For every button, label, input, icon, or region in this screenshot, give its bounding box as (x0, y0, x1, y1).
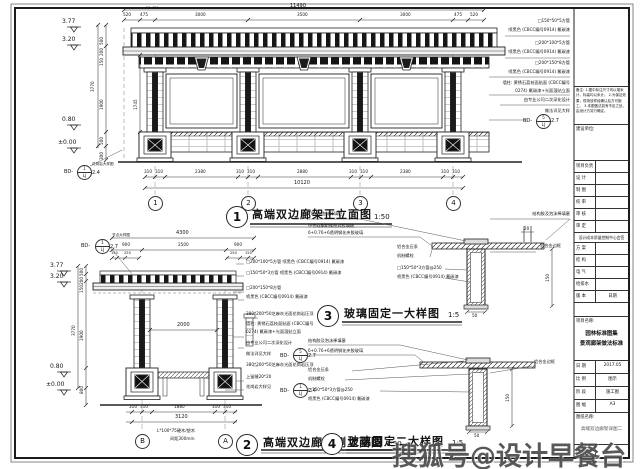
side-dim-small: 150 (245, 252, 252, 256)
annotation: 6+0.76+6透明钢化夹胶玻璃 (308, 231, 363, 235)
info-value: 图示 (596, 374, 629, 386)
drawing-name-label: 图纸名称: (574, 413, 629, 420)
cs-value (596, 279, 629, 290)
side-dim: 900 (234, 243, 242, 247)
info-value: 2017.05 (596, 361, 629, 373)
countersign-row: 方 案 (574, 243, 629, 255)
info-key: 日 期 (574, 361, 596, 373)
view-scale: 1:50 (374, 214, 390, 221)
annotation: □150*50*3方管@250 (308, 388, 353, 392)
annotation: 10mm泡沫棒填充 (308, 212, 342, 216)
info-row: 日 期2017.05 (574, 361, 629, 374)
ref-num: 5 (294, 349, 307, 356)
front-dim: 310 (452, 170, 460, 174)
sign-value (596, 221, 629, 232)
annotation: 花岗岩大样见 (246, 385, 271, 389)
level-label: ±0.00 (46, 382, 64, 388)
info-value: A3 (596, 400, 629, 412)
annotation: 上留缝20*20 (246, 375, 271, 379)
countersign-row: 给排水 (574, 279, 629, 291)
annotation: 墙柱: 黄锈石荔枝面贴面 (CBCC编号 (452, 81, 570, 85)
front-dim-total-top: 11490 (290, 4, 306, 9)
cs-value (596, 255, 629, 266)
annotation: 做法详见大样 (246, 352, 271, 356)
front-dim: 3000 (400, 13, 411, 17)
side-vdim: 3770 (72, 325, 76, 336)
ref-note: 花岗岩大样图 (92, 163, 114, 167)
side-vdim: 1900 (80, 330, 84, 341)
view-number-bubble: 4 (321, 433, 343, 455)
detail-dim: 150 (546, 274, 550, 282)
front-vdim: 300 (100, 152, 104, 160)
grid-bubble-B: B (135, 434, 150, 449)
side-vdim: 200 (80, 277, 84, 285)
view-number-bubble: 1 (226, 206, 248, 228)
project-name-line2: 景观廊架做法标准 (574, 339, 629, 347)
project-name-block: 项目名称: 园林标准图集 景观廊架做法标准 (574, 317, 629, 361)
front-dim: 475 (140, 13, 148, 17)
side-dim: 1880 (174, 405, 185, 409)
countersign-header: 设计成本质量控制中心会签 (574, 233, 629, 243)
sign-value (596, 161, 629, 172)
cs-label: 结 构 (574, 255, 596, 266)
front-vdim: 1745 (134, 99, 138, 110)
sign-row: 制 图 (574, 185, 629, 197)
level-label: ±0.00 (58, 140, 76, 146)
annotation: 喷黑色 (CBCC编号0914) 氟碳漆 (397, 275, 459, 279)
sign-row: 审 定 (574, 221, 629, 233)
ref-code: LJ (294, 391, 307, 397)
annotation: □200*150*8方管 (452, 61, 570, 65)
side-dim-small: 250 (124, 252, 131, 256)
annotation: □200*100*5方管 (452, 41, 570, 45)
ref-prefix: BD- (280, 354, 289, 359)
front-dim: 2380 (195, 170, 206, 174)
front-dim: 310 (247, 170, 255, 174)
side-dim: 310 (212, 405, 220, 409)
view-number-bubble: 2 (236, 434, 258, 456)
info-row: 图 幅A3 (574, 400, 629, 413)
sign-value (596, 185, 629, 196)
grid-bubble-A: A (218, 434, 233, 449)
ref-suffix: 2.4 (92, 171, 100, 176)
ref-bubble: 1LJ (95, 239, 110, 254)
ref-suffix: 2.7 (110, 245, 118, 250)
annotation: 380*200*50芝麻灰光面花岗岩压顶 (246, 312, 313, 316)
info-key: 阶 段 (574, 387, 596, 399)
level-label: 3.20 (50, 274, 63, 280)
detail-dim: 50 (472, 314, 477, 318)
side-dim-small: 150 (111, 252, 118, 256)
sign-label: 校 审 (574, 197, 596, 208)
ref-num: 1 (96, 240, 109, 247)
sign-label: 审 定 (574, 221, 596, 232)
front-vdim: 500 (100, 137, 104, 145)
ref-bubble: 1LJ (293, 383, 308, 398)
level-label: 3.77 (62, 19, 75, 25)
side-vdim: 800 (80, 386, 84, 394)
drawing-name: 高端双边廊架详图二 (574, 426, 629, 432)
detail-dim: 20 (524, 227, 529, 231)
annotation: 喷黑色 (CBCC编号0914) 氟碳漆 (308, 397, 370, 401)
sign-label: 设 计 (574, 173, 596, 184)
annotation: 铝合金边框 (540, 244, 561, 248)
annotation: 铝合金压条 (308, 368, 329, 372)
front-dim: 310 (144, 170, 152, 174)
ref-bubble: 5LJ (536, 114, 551, 129)
front-dim: 310 (155, 170, 163, 174)
side-dim: 310 (223, 405, 231, 409)
titleblock-notes: 备注: 1.图中标注尺寸均以毫米计，标高均以米计。 2.为保证效果，现场放样经确… (574, 87, 629, 125)
front-vdim: 1900 (100, 99, 104, 110)
front-vdim: 3770 (91, 81, 95, 92)
grid-bubble-4: 4 (446, 196, 461, 211)
annotation: 机制螺栓 (397, 254, 414, 258)
annotation: □150*50*3方管@250 (397, 266, 442, 270)
ref-suffix: 2.7 (308, 354, 316, 359)
ref-code: LJ (78, 173, 91, 179)
countersign-row: 电 气 (574, 267, 629, 279)
front-dim: 2380 (400, 170, 411, 174)
front-dim-small: 50 400 (146, 7, 159, 11)
front-dim: 3500 (297, 13, 308, 17)
level-label: 3.77 (50, 263, 63, 269)
ref-note: 节点大样图 (112, 234, 130, 238)
ref-num: 1 (294, 384, 307, 391)
project-label: 项目名称: (574, 317, 629, 324)
client-row: 建设单位: (574, 125, 629, 161)
notes-label: 备注: (576, 88, 584, 92)
side-dim-total-top: 4300 (176, 231, 189, 236)
front-vdim: 500 (100, 37, 104, 45)
side-dim-total-bottom: 3120 (175, 415, 188, 420)
sign-row: 设 计 (574, 173, 629, 185)
side-dim: 2500 (178, 243, 189, 247)
side-dim: 310 (140, 405, 148, 409)
front-dim: 475 (454, 13, 462, 17)
sign-label: 审 核 (574, 209, 596, 220)
sign-row: 校 审 (574, 197, 629, 209)
version-label: 版 本 (574, 291, 596, 302)
annotation: 喷黑色 (CBCC编号0914) 氟碳漆 (452, 50, 570, 54)
annotation: 0274) 氟碳漆+光面湿贴立面 (452, 89, 570, 93)
front-dim-total-bottom: 10120 (294, 181, 310, 186)
annotation: 做法详见大样 (452, 109, 570, 113)
annotation: 铝合金边框 (534, 360, 555, 364)
info-key: 比 例 (574, 374, 596, 386)
annotation: 喷黑色 (CBCC编号0914) 氟碳漆 (452, 28, 570, 32)
front-vdim: 150 (100, 58, 104, 66)
sign-value (596, 209, 629, 220)
version-row: 版 本日期 (574, 291, 629, 303)
annotation: 由专业公司二次深化设计 (452, 98, 570, 102)
level-label: 3.20 (62, 37, 75, 43)
annotation: 中性硅酮耐候密封胶填缝 (308, 224, 354, 228)
ref-code: LJ (537, 122, 550, 128)
cs-value (596, 267, 629, 278)
front-dim: 310 (349, 170, 357, 174)
ref-prefix: BD- (523, 119, 532, 124)
front-dim: 310 (441, 170, 449, 174)
ref-prefix: BD- (81, 244, 90, 249)
side-dim: 900 (122, 243, 130, 247)
annotation: □200*150*8方管 (246, 286, 281, 290)
sign-value (596, 173, 629, 184)
info-row: 比 例图示 (574, 374, 629, 387)
ref-code: LJ (96, 247, 109, 253)
front-dim: 310 (236, 170, 244, 174)
project-name-line1: 园林标准图集 (574, 329, 629, 337)
annotation: 喷黑色 (CBCC编号0914) 氟碳漆 (452, 70, 570, 74)
front-vdim: 200 (100, 48, 104, 56)
view-scale: 1:5 (448, 312, 459, 319)
annotation: 380*200*50芝麻灰光面花岗岩压顶 (246, 363, 313, 367)
sign-label: 制 图 (574, 185, 596, 196)
ref-suffix: 2.7 (551, 119, 559, 124)
annotation: □150*50*3方管 喷黑色 (CBCC编号0914) 氟碳漆 (246, 271, 342, 275)
date-label: 日期 (596, 291, 629, 302)
view-title: 玻璃固定一大样图 (344, 308, 440, 319)
title-block: 备注: 1.图中标注尺寸均以毫米计，标高均以米计。 2.为保证效果，现场放样经确… (574, 8, 629, 458)
sign-row: 项目负责 (574, 161, 629, 173)
annotation: 结构胶及泡沫棒填塞 (308, 339, 346, 343)
cs-label: 方 案 (574, 243, 596, 254)
note-line: 3.本图做法如有不足之处，由设计方另行确定。 (576, 104, 626, 113)
info-value: 施工图 (596, 387, 629, 399)
sign-row: 审 核 (574, 209, 629, 221)
view-number-bubble: 3 (317, 305, 339, 327)
wood-note: L*100*75硬木/塑木 (157, 429, 195, 433)
cs-label: 给排水 (574, 279, 596, 290)
titleblock-logo-area (574, 8, 629, 87)
grid-bubble-1: 1 (148, 196, 163, 211)
ref-prefix: BD- (64, 170, 73, 175)
side-dim-small: 250 (230, 252, 237, 256)
side-vdim: 150 (80, 285, 84, 293)
annotation: □150*50*5方管 (452, 19, 570, 23)
level-label: 0.80 (50, 364, 63, 370)
annotation: 喷黑色 (CBCC编号0914) 氟碳漆 (246, 295, 308, 299)
front-dim: 520 (470, 13, 478, 17)
level-label: 0.80 (62, 117, 75, 123)
ref-num: 5 (537, 115, 550, 122)
annotation: 6+0.76+6透明钢化夹胶玻璃 (308, 349, 363, 353)
cs-value (596, 243, 629, 254)
sign-label: 项目负责 (574, 161, 596, 172)
side-dim: 310 (129, 405, 137, 409)
annotation: 0274) 氟碳漆+光面湿贴立面 (246, 330, 301, 334)
front-dim: 3000 (195, 13, 206, 17)
drawing-sheet: 11490 520 475 50 400 3000 3500 3000 475 … (0, 0, 640, 469)
info-row: 阶 段施工图 (574, 387, 629, 400)
front-dim: 2880 (297, 170, 308, 174)
annotation: □200*100*5方管 喷黑色 (CBCC编号0914) 氟碳漆 (246, 260, 344, 264)
ref-prefix: BD- (280, 389, 289, 394)
front-dim: 520 (123, 13, 131, 17)
ref-num: 1 (78, 166, 91, 173)
annotation: 结构胶及泡沫棒填塞 (470, 212, 570, 216)
annotation: 机制螺栓 (308, 377, 325, 381)
sohu-watermark: 搜狐号@设计早餐台 (392, 436, 626, 469)
annotation: 墙柱: 黄锈石荔枝面贴面 (CBCC编号 (246, 322, 314, 326)
side-vdim: 500 (80, 268, 84, 276)
detail-dim: 150 (506, 394, 510, 402)
cs-label: 电 气 (574, 267, 596, 278)
countersign-row: 结 构 (574, 255, 629, 267)
sign-value (596, 197, 629, 208)
side-dim-mid: 2000 (177, 323, 190, 328)
front-dim: 310 (360, 170, 368, 174)
wood-gap-note: 间距300mm (170, 437, 195, 441)
titleblock-spacer (574, 303, 629, 317)
annotation: 铝合金压条 (397, 245, 418, 249)
ref-bubble: 5LJ (293, 348, 308, 363)
ref-bubble: 1LJ (77, 165, 92, 180)
annotation: 由专业公司二次深化设计 (246, 341, 292, 345)
info-key: 图 幅 (574, 400, 596, 412)
